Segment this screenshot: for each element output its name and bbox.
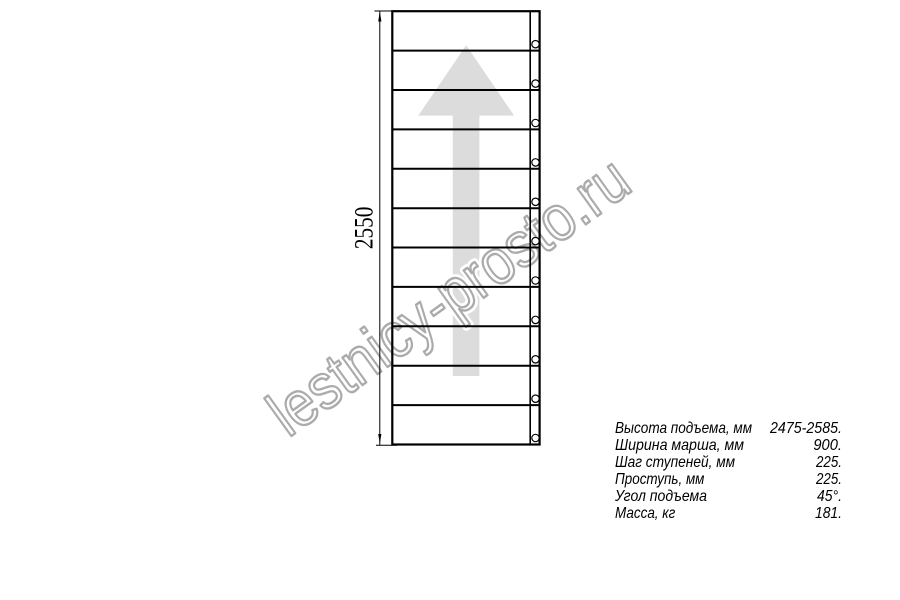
svg-text:Высота подъема, мм: Высота подъема, мм [615,420,752,437]
svg-text:Масса, кг: Масса, кг [615,505,676,522]
svg-text:900.: 900. [813,437,842,454]
svg-text:181.: 181. [815,505,842,522]
svg-text:Угол подъема: Угол подъема [614,488,707,505]
svg-text:Шаг ступеней, мм: Шаг ступеней, мм [615,454,735,471]
svg-text:2475-2585.: 2475-2585. [769,420,842,437]
svg-text:Проступь, мм: Проступь, мм [615,471,705,488]
svg-text:225.: 225. [815,471,842,488]
svg-text:Ширина марша, мм: Ширина марша, мм [615,437,744,454]
svg-text:45°.: 45°. [817,488,842,505]
svg-text:225.: 225. [815,454,842,471]
svg-text:2550: 2550 [350,207,379,250]
